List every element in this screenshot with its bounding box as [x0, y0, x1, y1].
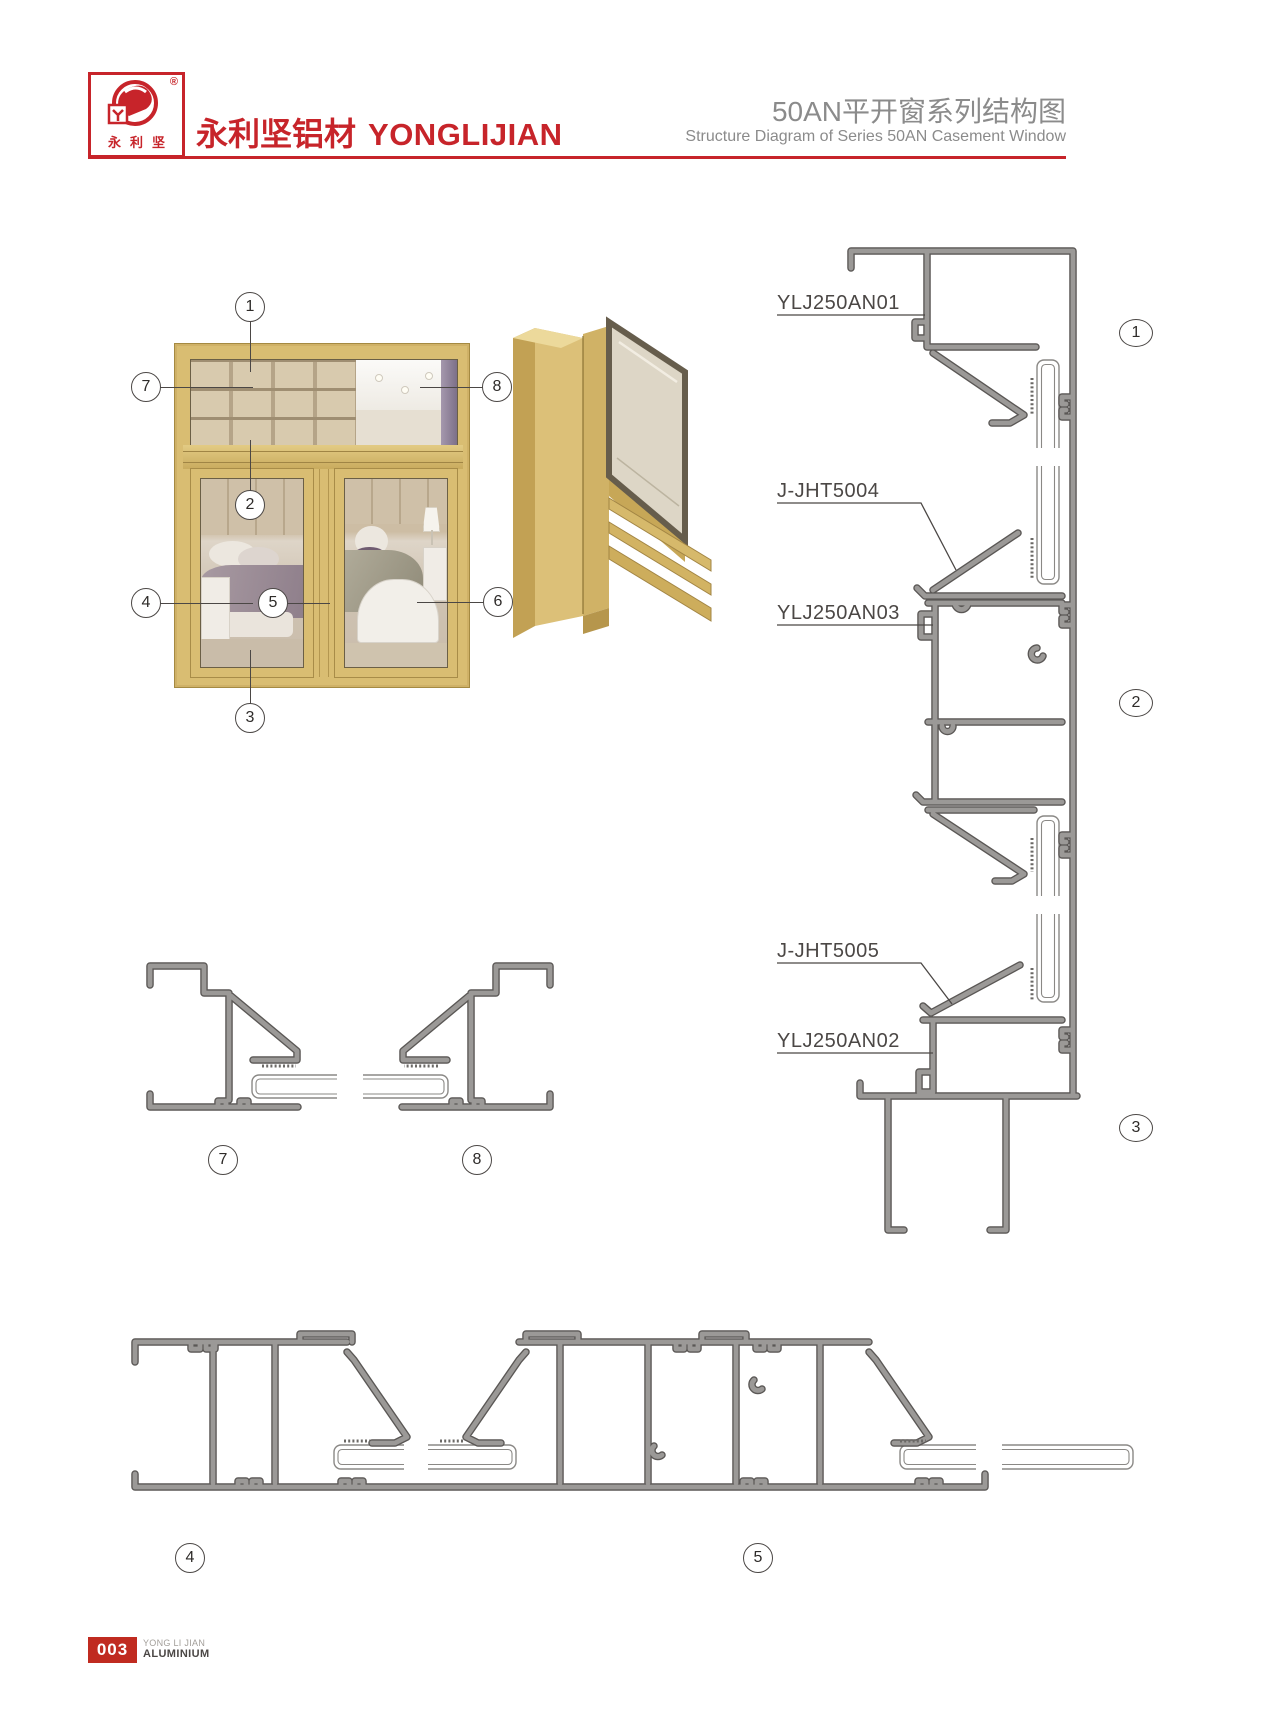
leader-line-3: [250, 650, 251, 704]
section-callout-5: 5: [743, 1543, 773, 1573]
horizontal-section-78-drawing: [130, 950, 570, 1180]
section-callout-7: 7: [208, 1145, 238, 1175]
glass-pane-upper: [1037, 360, 1059, 584]
profile-label-jht5004: J-JHT5004: [777, 480, 879, 502]
profile-label-an02: YLJ250AN02: [777, 1030, 900, 1052]
right-sash: [335, 469, 457, 677]
brand-name-en: YONGLIJIAN: [368, 117, 562, 153]
section-callout-2: 2: [1119, 689, 1153, 717]
horizontal-section-45-drawing: [115, 1320, 1145, 1510]
ceiling-light: [375, 374, 383, 382]
callout-3: 3: [235, 703, 265, 733]
profile-label-jht5005: J-JHT5005: [777, 940, 879, 962]
brand-name-cn: 永利坚铝材: [196, 109, 356, 155]
glass-break: [1031, 448, 1065, 466]
footer-brand-line2: ALUMINIUM: [143, 1648, 210, 1660]
profile-label-an01: YLJ250AN01: [777, 292, 900, 314]
header-rule: [88, 156, 1066, 159]
floor: [345, 643, 447, 667]
page-number-badge: 003: [88, 1637, 137, 1663]
section-callout-1: 1: [1119, 319, 1153, 347]
leader-line-4: [160, 603, 253, 604]
page-title: 50AN平开窗系列结构图: [772, 90, 1066, 130]
page-subtitle: Structure Diagram of Series 50AN Casemen…: [685, 128, 1066, 146]
footer-brand-line1: YONG LI JIAN: [143, 1638, 205, 1648]
leader-line-2: [250, 440, 251, 491]
leader-line-5: [287, 603, 330, 604]
glass-break: [337, 1070, 363, 1103]
callout-2: 2: [235, 490, 265, 520]
mullion-groove: [319, 469, 329, 677]
profile-3d-render: [505, 308, 720, 643]
lamp-stem: [431, 530, 433, 545]
logo-characters: 永利坚: [91, 132, 182, 151]
leader-line-8: [420, 387, 483, 388]
brand-lockup: 永利坚铝材 YONGLIJIAN: [196, 109, 562, 155]
catalog-page: ® 永利坚 永利坚铝材 YONGLIJIAN 50AN平开窗系列结构图 Stru…: [0, 0, 1277, 1721]
bedroom-scene-right: [345, 479, 447, 667]
brand-logo-icon: [105, 79, 161, 129]
curtain: [441, 360, 457, 446]
nightstand: [201, 577, 230, 643]
callout-5: 5: [258, 588, 288, 618]
ceiling-light: [401, 386, 409, 394]
wall-panels: [191, 360, 356, 446]
leader-line-1: [250, 321, 251, 372]
transom-divider: [183, 445, 463, 469]
profile-label-an03: YLJ250AN03: [777, 602, 900, 624]
callout-4: 4: [131, 588, 161, 618]
vertical-section-drawing: YLJ250AN01 J-JHT5004 YLJ250AN03 J-JHT500…: [770, 230, 1160, 1260]
section-callout-3: 3: [1119, 1114, 1153, 1142]
transom-glass: [190, 359, 458, 447]
glass-break: [404, 1440, 428, 1474]
glass-break: [976, 1440, 1002, 1474]
glass-break: [1031, 896, 1065, 914]
window-elevation: [174, 343, 470, 688]
section-callout-8: 8: [462, 1145, 492, 1175]
registered-mark: ®: [170, 76, 178, 88]
glass-pane-right: [900, 1445, 1133, 1469]
callout-1: 1: [235, 292, 265, 322]
leader-line-7: [160, 387, 253, 388]
leader-line-6: [417, 602, 484, 603]
floor: [201, 639, 303, 667]
callout-7: 7: [131, 372, 161, 402]
brand-logo-box: ® 永利坚: [88, 72, 185, 158]
right-sash-glass: [344, 478, 448, 668]
section-callout-4: 4: [175, 1543, 205, 1573]
